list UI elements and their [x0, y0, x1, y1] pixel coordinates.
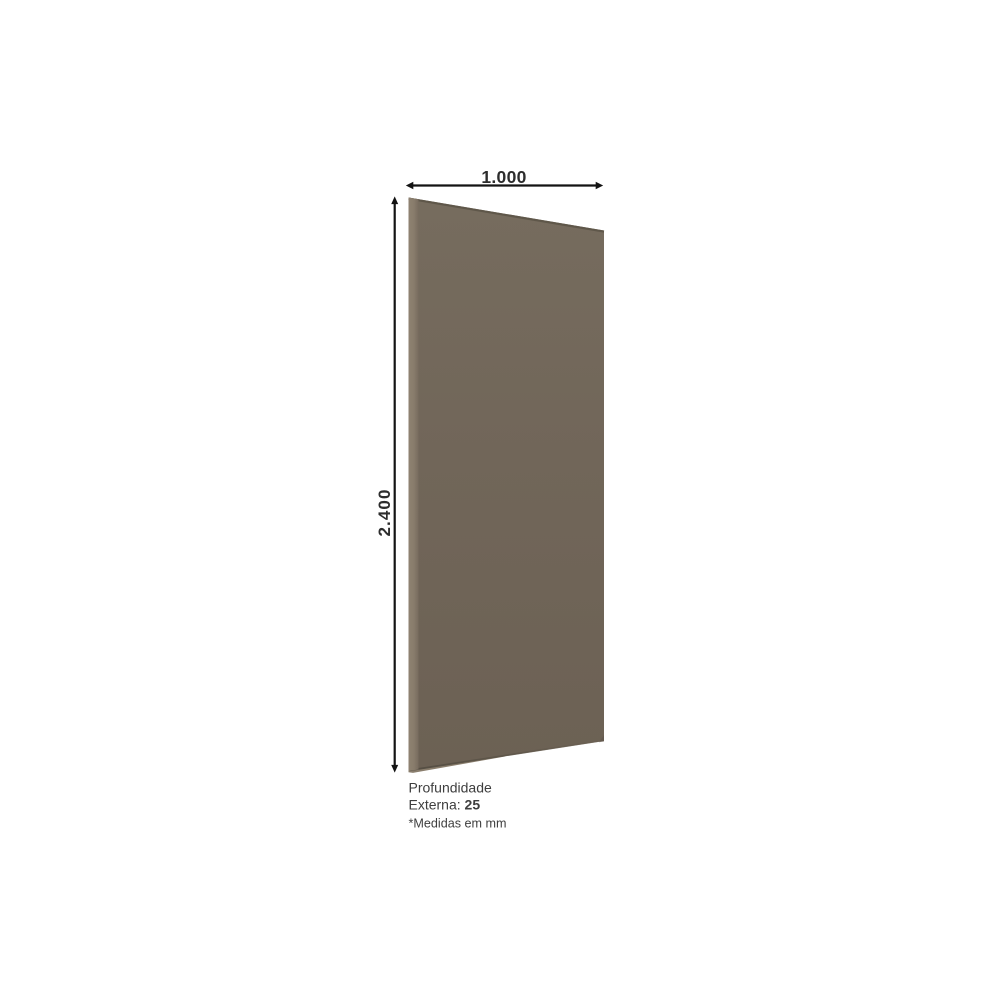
- svg-text:2.400: 2.400: [375, 488, 394, 536]
- svg-text:Profundidade: Profundidade: [409, 780, 493, 796]
- svg-text:1.000: 1.000: [481, 167, 526, 187]
- svg-text:*Medidas em mm: *Medidas em mm: [409, 817, 507, 831]
- svg-text:Externa: 25: Externa: 25: [409, 797, 481, 813]
